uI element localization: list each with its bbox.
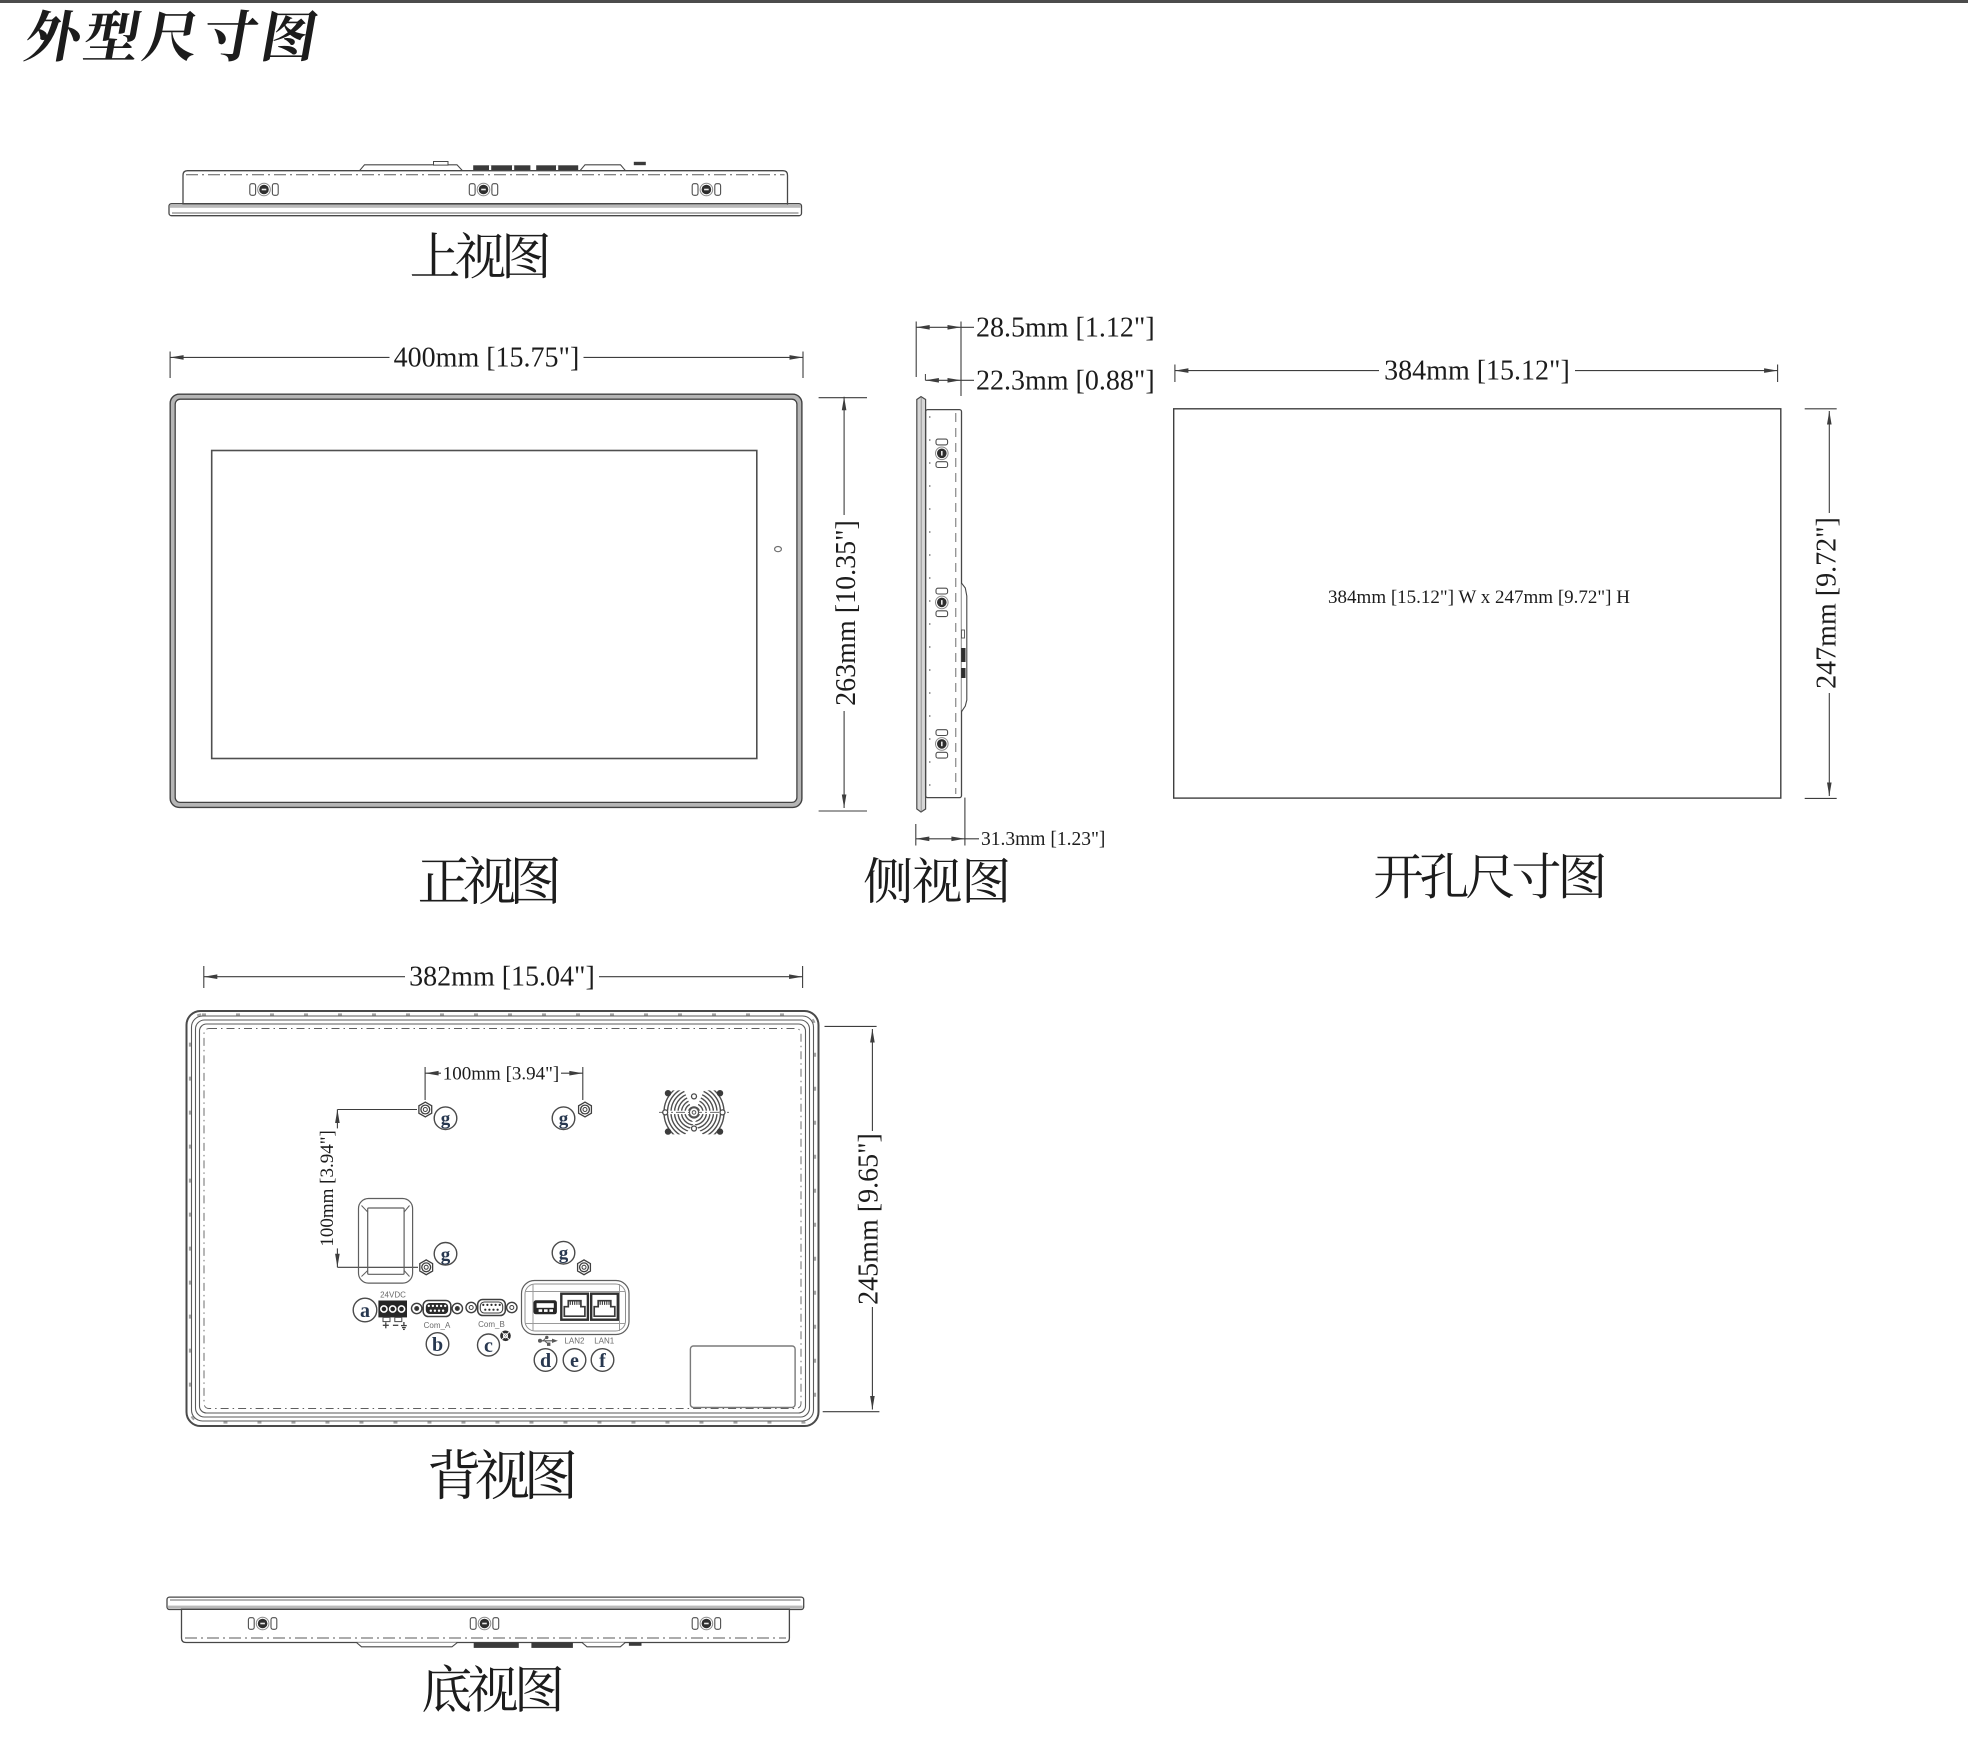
svg-text:28.5mm [1.12"]: 28.5mm [1.12"] [976,313,1155,344]
svg-text:b: b [432,1334,443,1356]
svg-text:g: g [441,1244,451,1265]
svg-text:a: a [360,1300,370,1322]
svg-text:g: g [559,1109,569,1130]
svg-text:400mm [15.75"]: 400mm [15.75"] [394,342,580,373]
svg-text:LAN2: LAN2 [564,1337,585,1346]
svg-text:24VDC: 24VDC [380,1291,406,1300]
svg-text:d: d [540,1350,551,1372]
svg-text:g: g [441,1109,451,1130]
svg-text:245mm [9.65"]: 245mm [9.65"] [854,1133,885,1305]
svg-text:f: f [599,1350,606,1372]
svg-text:22.3mm [0.88"]: 22.3mm [0.88"] [976,366,1155,397]
svg-text:c: c [484,1335,493,1357]
svg-text:247mm [9.72"]: 247mm [9.72"] [1812,517,1843,689]
svg-text:31.3mm [1.23"]: 31.3mm [1.23"] [981,829,1105,850]
svg-text:g: g [559,1243,569,1264]
svg-text:384mm [15.12"] W x 247mm [9.72: 384mm [15.12"] W x 247mm [9.72"] H [1328,587,1630,608]
svg-text:LAN1: LAN1 [594,1337,615,1346]
svg-text:Com_B: Com_B [478,1320,505,1329]
svg-text:384mm [15.12"]: 384mm [15.12"] [1384,356,1570,387]
svg-text:Com_A: Com_A [424,1321,451,1330]
svg-text:382mm [15.04"]: 382mm [15.04"] [409,962,595,993]
svg-text:263mm [10.35"]: 263mm [10.35"] [831,520,862,706]
svg-text:100mm [3.94"]: 100mm [3.94"] [443,1064,559,1085]
svg-text:100mm [3.94"]: 100mm [3.94"] [317,1130,338,1246]
svg-text:e: e [570,1350,579,1372]
